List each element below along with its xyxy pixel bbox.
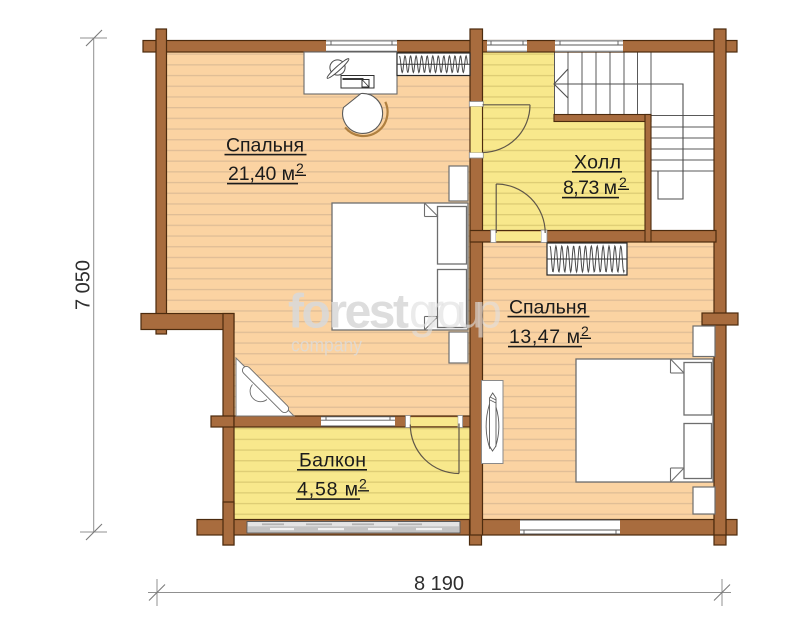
svg-text:2: 2 xyxy=(296,160,304,176)
svg-text:forest: forest xyxy=(288,286,409,339)
svg-text:21,40 м: 21,40 м xyxy=(228,163,295,185)
svg-text:4,58 м: 4,58 м xyxy=(297,479,358,501)
svg-text:2: 2 xyxy=(619,174,627,190)
svg-text:Холл: Холл xyxy=(574,152,621,174)
svg-text:group: group xyxy=(409,286,502,339)
svg-text:2: 2 xyxy=(359,476,367,492)
svg-text:Спальня: Спальня xyxy=(226,135,304,157)
svg-text:2: 2 xyxy=(581,323,589,339)
svg-text:company: company xyxy=(291,335,362,357)
svg-text:13,47 м: 13,47 м xyxy=(509,326,580,348)
svg-text:Спальня: Спальня xyxy=(509,297,587,319)
svg-text:7 050: 7 050 xyxy=(73,260,95,310)
svg-text:8,73 м: 8,73 м xyxy=(563,177,617,199)
svg-text:8 190: 8 190 xyxy=(414,573,464,595)
svg-text:Балкон: Балкон xyxy=(299,450,366,472)
